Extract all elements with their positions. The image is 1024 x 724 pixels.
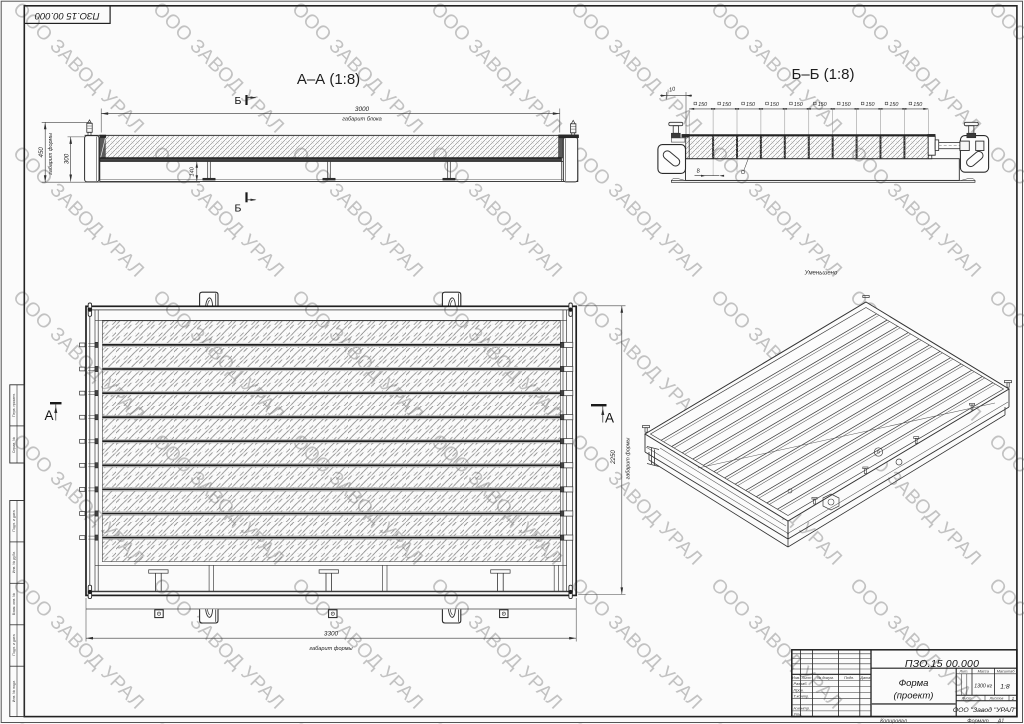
svg-text:габарит формы: габарит формы: [309, 646, 352, 652]
svg-text:ООО ЗАВОД УРАЛ: ООО ЗАВОД УРАЛ: [984, 286, 1024, 426]
svg-text:ООО ЗАВОД УРАЛ: ООО ЗАВОД УРАЛ: [984, 430, 1024, 570]
svg-text:Лит.: Лит.: [959, 670, 969, 674]
svg-text:ООО ЗАВОД УРАЛ: ООО ЗАВОД УРАЛ: [426, 0, 566, 138]
svg-text:ООО ЗАВОД УРАЛ: ООО ЗАВОД УРАЛ: [984, 574, 1024, 714]
svg-text:ООО ЗАВОД УРАЛ: ООО ЗАВОД УРАЛ: [8, 718, 148, 724]
svg-text:1: 1: [1012, 696, 1014, 701]
svg-text:140: 140: [190, 166, 196, 176]
svg-text:ООО "Завод "УРАЛ": ООО "Завод "УРАЛ": [953, 706, 1017, 714]
svg-text:ООО ЗАВОД УРАЛ: ООО ЗАВОД УРАЛ: [148, 0, 288, 138]
svg-text:Изм.: Изм.: [792, 676, 800, 680]
svg-text:габарит формы: габарит формы: [48, 133, 54, 175]
svg-text:№ докум.: № докум.: [817, 676, 834, 680]
svg-text:Форма: Форма: [899, 678, 929, 689]
svg-text:ООО ЗАВОД УРАЛ: ООО ЗАВОД УРАЛ: [845, 718, 985, 724]
svg-text:Утв.: Утв.: [794, 712, 803, 717]
svg-text:Перв. примен.: Перв. примен.: [12, 393, 16, 417]
svg-text:Листов: Листов: [989, 697, 1004, 701]
svg-text:150: 150: [889, 102, 898, 108]
svg-text:Подп.: Подп.: [844, 676, 854, 680]
svg-text:150: 150: [842, 102, 851, 108]
svg-text:Взам. инв. №: Взам. инв. №: [12, 593, 16, 615]
svg-text:ООО ЗАВОД УРАЛ: ООО ЗАВОД УРАЛ: [287, 142, 427, 282]
svg-text:ПЗО.15 00.000: ПЗО.15 00.000: [34, 10, 100, 21]
svg-text:Копировал: Копировал: [880, 719, 907, 724]
svg-text:Лист: Лист: [801, 676, 812, 680]
svg-text:А–А (1:8): А–А (1:8): [297, 71, 360, 88]
svg-text:Масса: Масса: [978, 670, 989, 674]
svg-text:ООО ЗАВОД УРАЛ: ООО ЗАВОД УРАЛ: [984, 142, 1024, 282]
svg-text:ООО ЗАВОД УРАЛ: ООО ЗАВОД УРАЛ: [566, 574, 706, 714]
svg-text:ООО ЗАВОД УРАЛ: ООО ЗАВОД УРАЛ: [706, 718, 846, 724]
svg-text:Инв. № дубл.: Инв. № дубл.: [12, 551, 16, 573]
svg-text:Подп. и дата: Подп. и дата: [12, 510, 16, 531]
svg-text:8: 8: [696, 168, 701, 175]
svg-text:Инв. № подл.: Инв. № подл.: [12, 680, 16, 702]
svg-text:ООО ЗАВОД УРАЛ: ООО ЗАВОД УРАЛ: [566, 0, 706, 138]
svg-text:ООО ЗАВОД УРАЛ: ООО ЗАВОД УРАЛ: [566, 286, 706, 426]
svg-text:Формат: Формат: [967, 719, 989, 724]
svg-text:ООО ЗАВОД УРАЛ: ООО ЗАВОД УРАЛ: [984, 0, 1024, 138]
svg-text:150: 150: [818, 102, 827, 108]
svg-text:ООО ЗАВОД УРАЛ: ООО ЗАВОД УРАЛ: [148, 142, 288, 282]
svg-text:Уменьшено: Уменьшено: [804, 271, 838, 277]
svg-text:Справ. №: Справ. №: [12, 437, 16, 453]
svg-text:(проект): (проект): [894, 691, 934, 702]
svg-text:Лист: Лист: [961, 697, 972, 701]
svg-text:Б–Б (1:8): Б–Б (1:8): [791, 66, 854, 83]
svg-text:габарит блока: габарит блока: [342, 117, 382, 123]
svg-text:А: А: [605, 411, 614, 426]
svg-text:150: 150: [866, 102, 875, 108]
svg-text:ООО ЗАВОД УРАЛ: ООО ЗАВОД УРАЛ: [426, 718, 566, 724]
svg-text:150: 150: [794, 102, 803, 108]
svg-text:Дата: Дата: [859, 676, 870, 680]
svg-text:ООО ЗАВОД УРАЛ: ООО ЗАВОД УРАЛ: [8, 142, 148, 282]
svg-text:ООО ЗАВОД УРАЛ: ООО ЗАВОД УРАЛ: [148, 718, 288, 724]
svg-text:ООО ЗАВОД УРАЛ: ООО ЗАВОД УРАЛ: [845, 0, 985, 138]
svg-text:Б: Б: [235, 95, 242, 107]
svg-text:1:8: 1:8: [1000, 684, 1010, 691]
svg-text:150: 150: [770, 102, 779, 108]
svg-text:450: 450: [38, 147, 45, 158]
svg-text:Подп. и дата: Подп. и дата: [12, 634, 16, 655]
svg-text:Масштаб: Масштаб: [997, 670, 1016, 674]
svg-text:2250: 2250: [610, 450, 617, 465]
svg-text:Т.контр.: Т.контр.: [794, 693, 810, 698]
svg-text:3300: 3300: [324, 630, 339, 637]
svg-text:А1: А1: [997, 719, 1005, 724]
svg-text:150: 150: [698, 102, 707, 108]
svg-text:3000: 3000: [355, 106, 370, 113]
svg-text:Н.контр.: Н.контр.: [794, 706, 810, 711]
svg-text:300: 300: [63, 153, 70, 164]
svg-text:1300 кг: 1300 кг: [974, 684, 992, 690]
svg-text:ООО ЗАВОД УРАЛ: ООО ЗАВОД УРАЛ: [566, 718, 706, 724]
svg-text:Разраб.: Разраб.: [794, 681, 808, 686]
svg-text:Б: Б: [235, 203, 242, 215]
svg-text:150: 150: [722, 102, 731, 108]
svg-text:габарит формы: габарит формы: [626, 438, 632, 480]
svg-text:ООО ЗАВОД УРАЛ: ООО ЗАВОД УРАЛ: [287, 718, 427, 724]
svg-text:А: А: [44, 408, 53, 423]
svg-text:150: 150: [913, 102, 922, 108]
svg-text:ООО ЗАВОД УРАЛ: ООО ЗАВОД УРАЛ: [706, 574, 846, 714]
svg-text:Пров.: Пров.: [794, 687, 804, 692]
svg-text:150: 150: [746, 102, 755, 108]
svg-text:ПЗО.15 00.000: ПЗО.15 00.000: [905, 658, 979, 670]
svg-text:ООО ЗАВОД УРАЛ: ООО ЗАВОД УРАЛ: [706, 142, 846, 282]
